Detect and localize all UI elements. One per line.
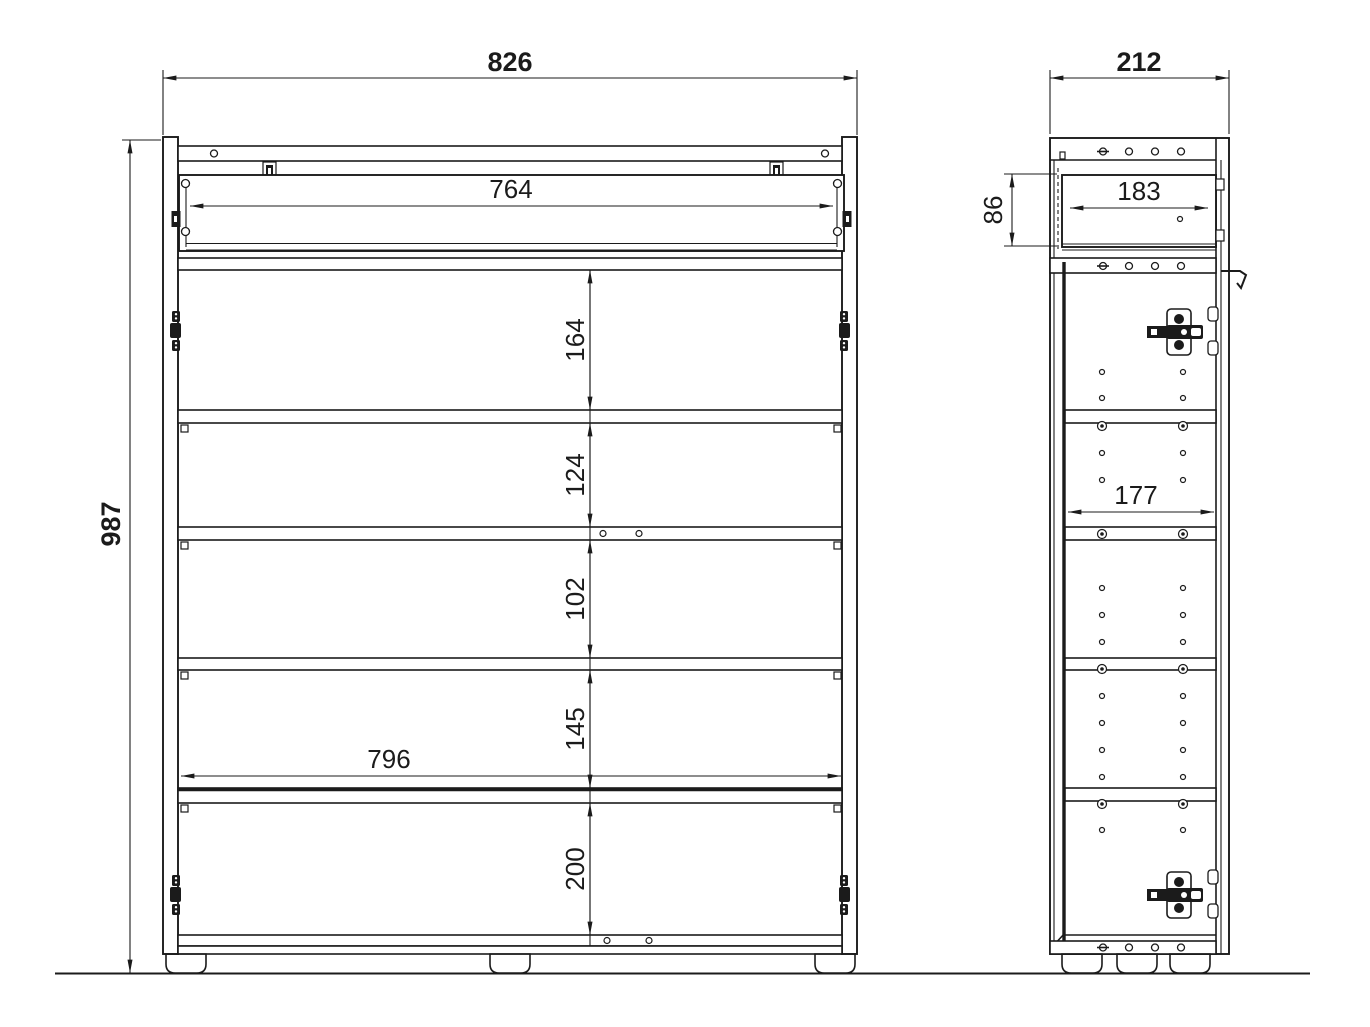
drawer-screw-hole (834, 228, 842, 236)
dim-drawer-inner-height: 86 (978, 174, 1057, 246)
dim-label-compartment-2: 124 (560, 453, 590, 496)
foot-icon (490, 954, 530, 973)
dim-label-interior-depth: 177 (1114, 480, 1157, 510)
shelf-1 (178, 410, 842, 423)
dim-label-drawer-inner-width: 764 (489, 174, 532, 204)
dim-overall-depth: 212 (1050, 47, 1229, 134)
drawer-screw-hole (834, 180, 842, 188)
fixing-hole (822, 150, 829, 157)
dim-label-compartment-5: 200 (560, 847, 590, 890)
rail-under-drawer (178, 258, 842, 270)
dim-compartment-chain: 164 124 102 145 200 (560, 270, 590, 946)
dim-label-overall-depth: 212 (1116, 47, 1161, 77)
dim-overall-height: 987 (96, 140, 161, 973)
bottom-hole (646, 938, 652, 944)
dim-label-overall-height: 987 (96, 501, 126, 546)
bottom-hole (604, 938, 610, 944)
shelf-4-side (1065, 788, 1216, 801)
shelf-3 (178, 658, 842, 670)
dim-label-compartment-1: 164 (560, 318, 590, 361)
side-bottom (1050, 941, 1216, 973)
foot-icon (166, 954, 206, 973)
dim-label-compartment-4: 145 (560, 707, 590, 750)
front-hinges (170, 311, 850, 915)
drawer-runner-clip-icon (263, 162, 276, 175)
shelf-2-side (1065, 527, 1216, 540)
dim-label-drawer-inner-depth: 183 (1117, 176, 1160, 206)
shelf-corner-fittings (181, 425, 841, 812)
dim-interior-width: 796 (181, 744, 841, 776)
front-feet (166, 954, 855, 973)
drawer-runner-clip-icon (770, 162, 783, 175)
front-top-rail (178, 146, 842, 161)
drawer-screw-hole (182, 228, 190, 236)
fixing-hole (211, 150, 218, 157)
side-view (1050, 138, 1246, 973)
drawer-latch-icon (172, 211, 181, 227)
shelf-hole (636, 531, 642, 537)
side-rail-under-drawer (1050, 258, 1216, 273)
foot-icon (1117, 954, 1157, 973)
shelf-hole (600, 531, 606, 537)
shelf-2 (178, 527, 842, 540)
front-right-side-panel (842, 137, 857, 954)
dim-label-drawer-inner-height: 86 (978, 196, 1008, 225)
drawer-latch-icon (843, 211, 852, 227)
front-view (163, 137, 857, 973)
dim-label-interior-width: 796 (367, 744, 410, 774)
drawer-screw-hole (182, 180, 190, 188)
foot-icon (815, 954, 855, 973)
dim-overall-width: 826 (163, 47, 857, 135)
technical-drawing-page: 826 987 764 164 124 102 145 200 796 (0, 0, 1370, 1027)
foot-icon (1170, 954, 1210, 973)
bottom-board (178, 935, 842, 946)
front-shelves (178, 258, 842, 954)
runner-clip-icon (1216, 179, 1224, 190)
foot-icon (1062, 954, 1102, 973)
front-left-side-panel (163, 137, 178, 954)
shelf-1-side (1065, 410, 1216, 423)
shelf-3-side (1065, 658, 1216, 670)
runner-clip-icon (1216, 230, 1224, 241)
plinth-rail (178, 946, 842, 954)
dim-label-overall-width: 826 (487, 47, 532, 77)
dim-label-compartment-3: 102 (560, 577, 590, 620)
cabinet-technical-drawing: 826 987 764 164 124 102 145 200 796 (0, 0, 1370, 1027)
